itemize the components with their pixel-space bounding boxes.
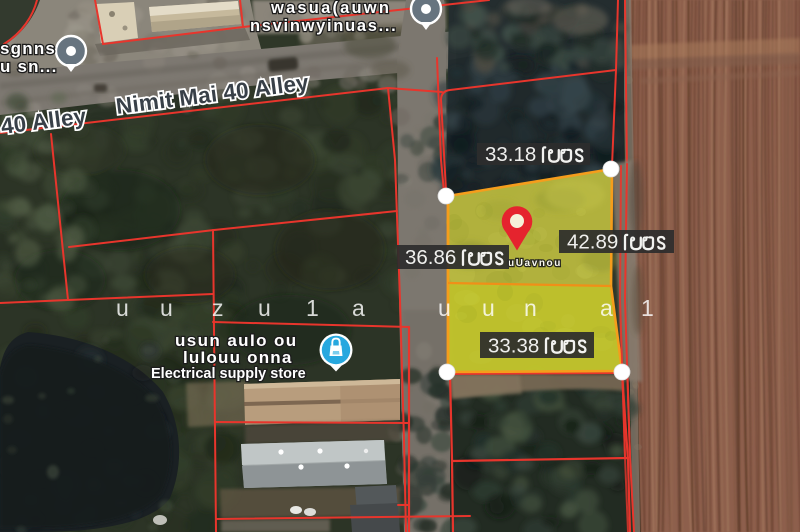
svg-text:nsvinwyinuas...: nsvinwyinuas... [250,17,397,35]
svg-text:n: n [524,295,537,321]
svg-text:sgnns: sgnns [0,39,56,58]
svg-text:1: 1 [306,295,319,321]
svg-text:36.86: 36.86 [405,246,456,269]
svg-text:1: 1 [641,295,654,321]
svg-text:uUavnou: uUavnou [508,258,562,269]
svg-text:33.38: 33.38 [488,334,539,357]
svg-text:33.18: 33.18 [485,143,536,166]
svg-text:z: z [212,295,224,321]
svg-text:u: u [160,295,173,321]
svg-text:u sn...: u sn... [0,57,58,76]
svg-text:wasua(auwn: wasua(auwn [270,0,391,17]
svg-text:u: u [258,295,271,321]
svg-text:u: u [116,295,129,321]
svg-text:Electrical supply store: Electrical supply store [151,366,306,382]
svg-text:42.89: 42.89 [567,231,618,254]
svg-text:u: u [482,295,495,321]
svg-text:luIouu onna: luIouu onna [183,348,293,367]
svg-text:a: a [352,295,365,321]
svg-text:u: u [438,295,451,321]
svg-text:a: a [600,295,613,321]
